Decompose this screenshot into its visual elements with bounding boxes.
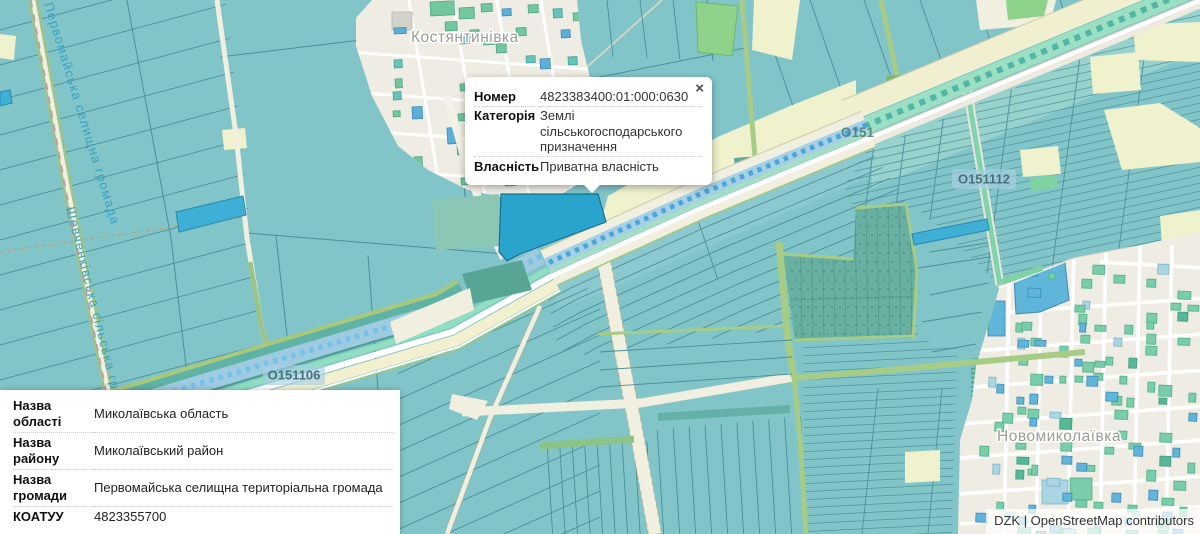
svg-text:Новомиколаївка: Новомиколаївка xyxy=(997,428,1121,445)
svg-text:Костянтинівка: Костянтинівка xyxy=(411,29,519,46)
svg-text:О151: О151 xyxy=(841,125,875,140)
svg-text:О151106: О151106 xyxy=(268,368,321,383)
svg-text:О151112: О151112 xyxy=(958,172,1010,187)
